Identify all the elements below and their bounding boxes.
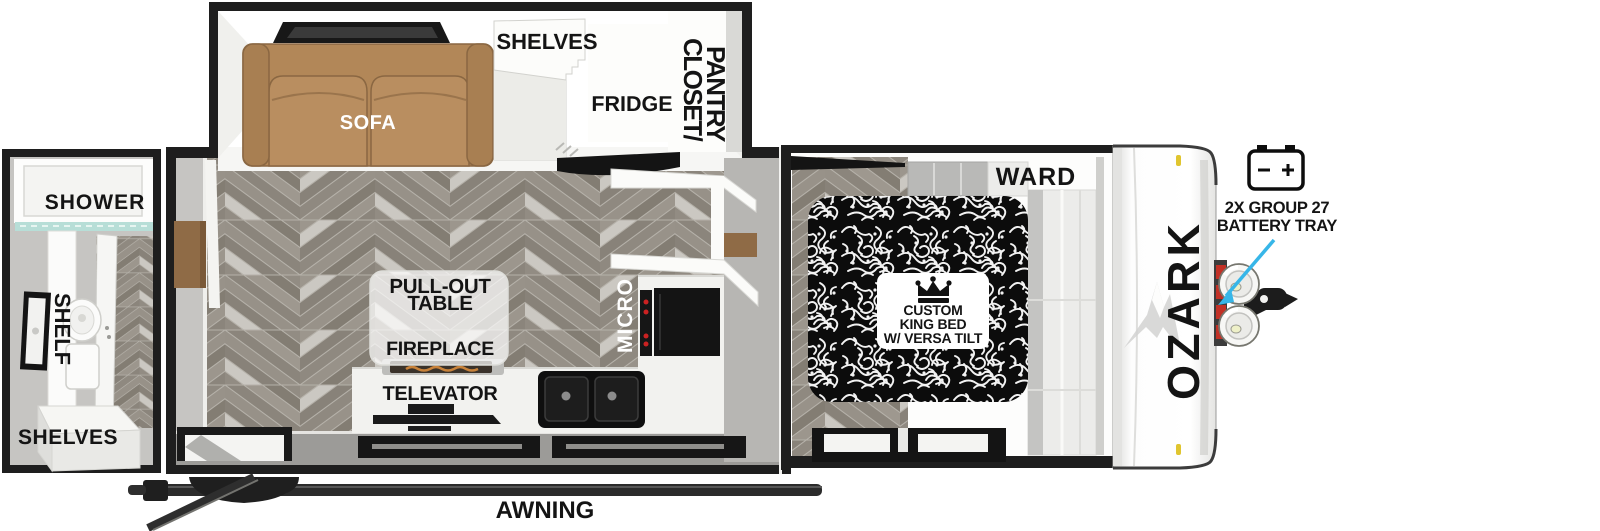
svg-text:PANTRY: PANTRY (701, 46, 731, 142)
svg-text:BATTERY TRAY: BATTERY TRAY (1217, 217, 1337, 235)
svg-text:2X GROUP 27: 2X GROUP 27 (1225, 199, 1330, 217)
svg-text:OZARK: OZARK (1158, 220, 1209, 400)
svg-text:TABLE: TABLE (407, 292, 472, 315)
svg-text:MICRO: MICRO (614, 278, 637, 353)
svg-text:TELEVATOR: TELEVATOR (382, 383, 498, 405)
svg-text:AWNING: AWNING (496, 497, 595, 524)
svg-text:SHELVES: SHELVES (496, 29, 597, 54)
svg-text:FRIDGE: FRIDGE (591, 92, 672, 116)
svg-text:W/ VERSA TILT: W/ VERSA TILT (884, 330, 983, 346)
svg-text:SHELF: SHELF (50, 293, 75, 365)
svg-text:WARD: WARD (996, 163, 1076, 191)
svg-text:FIREPLACE: FIREPLACE (386, 338, 494, 360)
svg-text:SHELVES: SHELVES (18, 426, 118, 449)
svg-text:SHOWER: SHOWER (45, 191, 146, 214)
svg-text:SOFA: SOFA (340, 112, 396, 134)
